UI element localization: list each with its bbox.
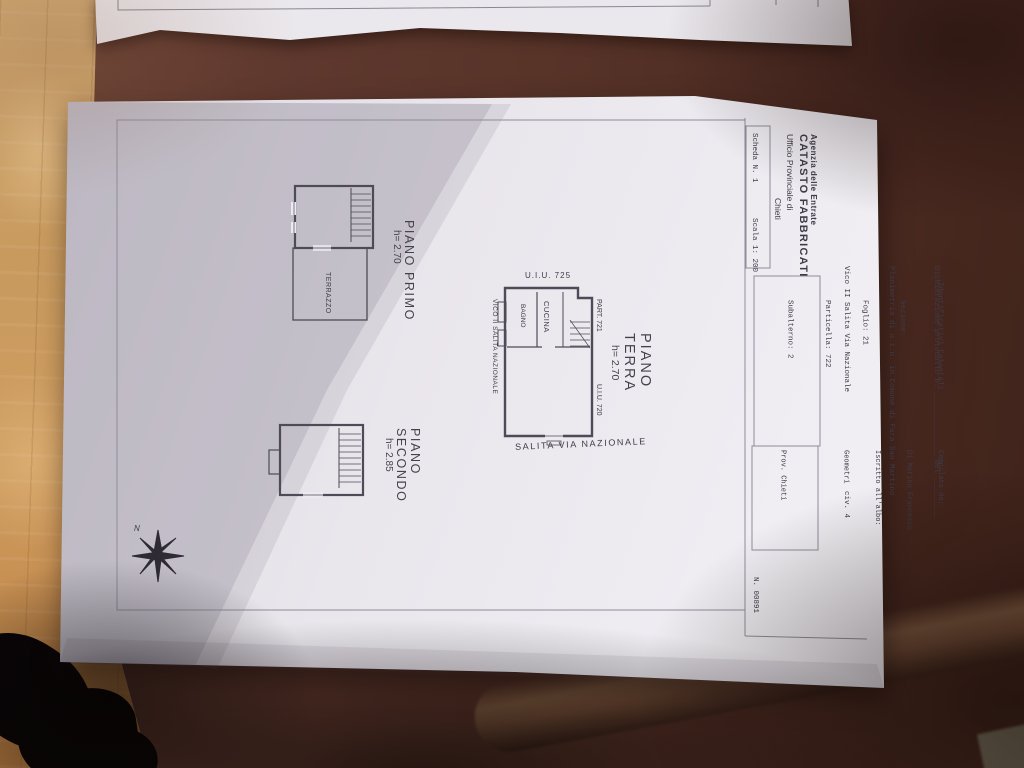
room-bagno-label: BAGNO [519, 304, 526, 327]
cadastral-title: Identificativi Catastali. [933, 282, 946, 447]
compiler-register: Iscritto all'albo: [872, 450, 883, 550]
compiler-name: Di Marino Francesco [903, 450, 914, 550]
compiler-province: Prov. Chieti [777, 450, 788, 550]
piano-terra-height: h= 2.70 [609, 333, 621, 429]
top-sheet-drawing [88, 0, 863, 56]
top-sheet-paper [88, 0, 863, 56]
compiler-label: Compilata da: [935, 450, 946, 550]
cadastral-identifiers-block: Identificativi Catastali. Sezione: Fogli… [758, 282, 971, 447]
cadastral-particella: Particella: 722 [821, 282, 834, 447]
room-terrazzo-label: TERRAZZO [324, 272, 331, 314]
office-city: Chieti [773, 134, 783, 284]
piano-secondo-height: h= 2.85 [383, 428, 394, 548]
agency-title-block: Agenzia delle Entrate CATASTO FABBRICATI… [773, 134, 818, 284]
planimetria-sheet: Agenzia delle Entrate CATASTO FABBRICATI… [55, 90, 900, 700]
piano-primo-title: PIANO PRIMO h= 2.70 [391, 220, 416, 330]
office-line: Ufficio Provinciale di [785, 134, 795, 284]
compiler-profession: Geometri [840, 450, 851, 550]
piano-secondo-title: PIANO SECONDO h= 2.85 [383, 428, 422, 548]
piano-terra-title: PIANO TERRA h= 2.70 [609, 333, 653, 429]
photo-of-cadastral-floorplan: Agenzia delle Entrate CATASTO FABBRICATI… [0, 0, 1024, 768]
catasto-title: CATASTO FABBRICATI [797, 134, 809, 284]
piano-primo-height: h= 2.70 [391, 220, 402, 330]
compiler-block: Compilata da: Di Marino Francesco Iscrit… [756, 450, 966, 550]
street-vico-label: VICO II SALITA NAZIONALE [491, 299, 498, 394]
part-721-label: PART. 721 [595, 299, 602, 332]
compass-north-label: N [134, 524, 140, 533]
cadastral-sezione: Sezione: [896, 282, 909, 447]
cadastral-subalterno: Subalterno: 2 [783, 282, 796, 447]
sheet-number: Scheda N. 1 [750, 133, 758, 183]
agency-name: Agenzia delle Entrate [809, 134, 818, 284]
cadastral-foglio: Foglio: 21 [858, 282, 871, 447]
uiu-725-label: U.I.U. 725 [525, 271, 571, 280]
document-number: N. 00891 [751, 577, 759, 613]
uiu-720-label: U.I.U. 720 [595, 384, 602, 416]
scale-label: Scala 1: 200 [750, 218, 758, 272]
room-cucina-label: CUCINA [542, 301, 551, 333]
